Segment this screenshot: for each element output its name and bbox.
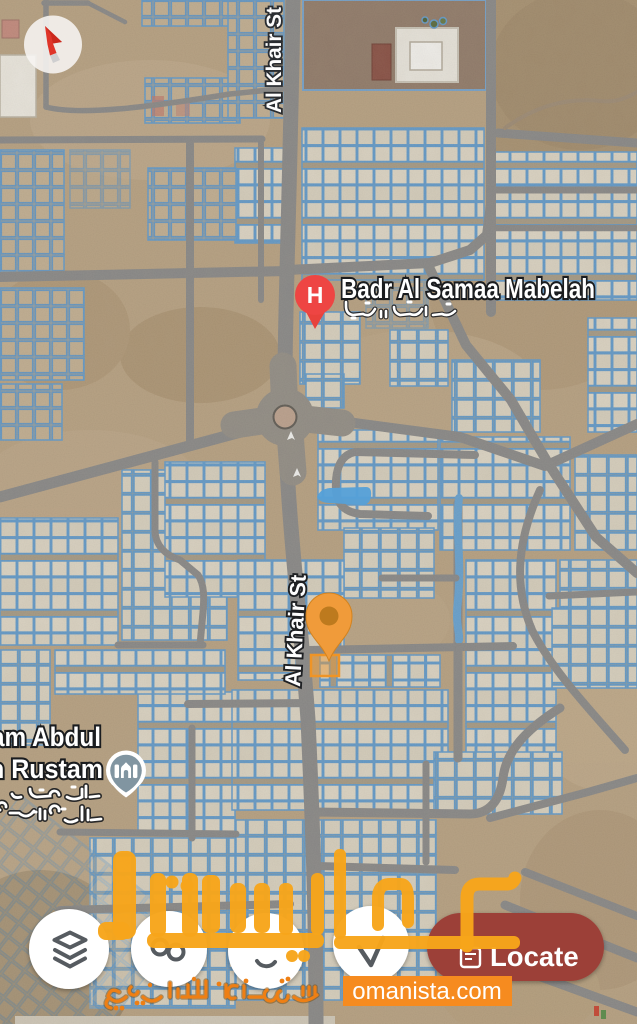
svg-text:H: H bbox=[307, 282, 324, 308]
svg-text:am Abdul: am Abdul bbox=[0, 722, 101, 752]
svg-text:n Rustam: n Rustam bbox=[0, 754, 103, 784]
svg-text:omanista.com: omanista.com bbox=[352, 978, 501, 1005]
svg-text:Al Khair St: Al Khair St bbox=[263, 7, 286, 113]
svg-text:Badr Al Samaa Mabelah: Badr Al Samaa Mabelah bbox=[341, 273, 595, 304]
